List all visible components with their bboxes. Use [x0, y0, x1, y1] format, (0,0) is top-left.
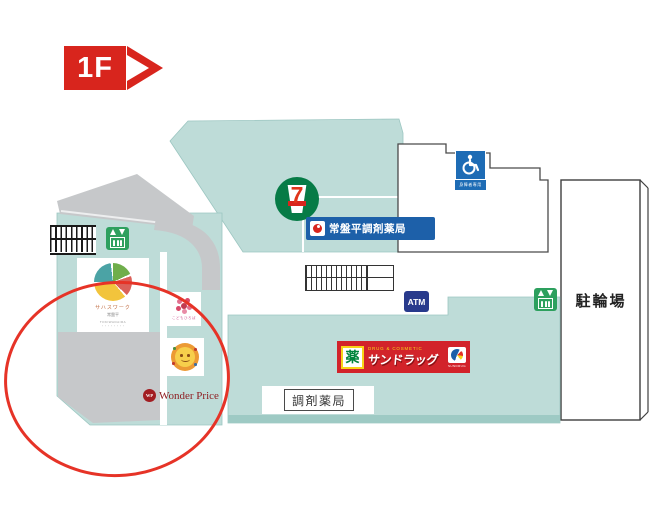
smiley-logo-tenant-card: [166, 338, 204, 376]
bicycle-parking-label: 駐輪場: [575, 290, 626, 311]
sundrug-kanji: 薬: [346, 347, 360, 367]
accessible-parking-caption: 身障者専用: [455, 180, 486, 190]
sundrug-kanji-badge: 薬: [341, 346, 364, 369]
stairs-icon: [50, 225, 96, 255]
seven-eleven-digit: 7: [275, 184, 319, 207]
sundrug-s-logo: SUNDRUG: [448, 347, 466, 368]
bottom-building-edge: [228, 415, 560, 423]
pie-tenant-line4: ・・・・・・・・: [101, 324, 125, 328]
stairs-icon: [305, 265, 394, 291]
wheelchair-icon: [455, 150, 486, 180]
accessible-parking-sign: 身障者専用: [455, 150, 486, 190]
sundrug-name: サンドラッグ: [367, 351, 439, 368]
atm-label: ATM: [408, 297, 426, 307]
slab-bevel: [640, 412, 648, 420]
sundrug-swoosh-icon: [448, 347, 466, 363]
pie-tenant-line2: 常盤平: [107, 312, 119, 318]
seven-eleven-logo: 7: [275, 177, 319, 221]
sundrug-banner: 薬 DRUG & COSMETIC サンドラッグ SUNDRUG: [337, 341, 470, 373]
pie-tenant-line1: サハスワーク: [95, 304, 131, 311]
bicycle-parking-label-wrap: 駐輪場: [561, 180, 641, 420]
slab-bevel: [640, 180, 648, 188]
elevator-icon: [534, 288, 557, 311]
floor-map-1f: 1F 7 常盤平調剤薬局 身障者専用 ATM: [0, 0, 664, 520]
floor-label: 1F: [77, 52, 113, 85]
wonder-price-name: Wonder Price: [159, 390, 219, 402]
pie-logo-tenant-card: サハスワーク 常盤平 TOKIWADAIRA ・・・・・・・・: [77, 258, 149, 332]
tokiwadaira-pharmacy-banner: 常盤平調剤薬局: [306, 217, 435, 240]
pie-logo: [94, 263, 132, 301]
floor-flag: 1F: [64, 46, 164, 90]
atm-badge: ATM: [404, 291, 429, 312]
elevator-icon: [106, 227, 129, 250]
flower-logo: [176, 298, 192, 314]
tokiwadaira-pharmacy-name: 常盤平調剤薬局: [329, 221, 406, 236]
floor-flag-body: 1F: [64, 46, 126, 90]
floor-flag-chevron-icon: [127, 46, 163, 90]
smiley-logo: [171, 343, 199, 371]
sundrug-caption: SUNDRUG: [448, 364, 466, 368]
flower-tenant-caption: こどもひろば: [172, 316, 196, 321]
wonder-price-store: WP Wonder Price: [143, 389, 219, 402]
sundrug-wordmark: DRUG & COSMETIC サンドラッグ: [368, 346, 438, 368]
flower-logo-tenant-card: こどもひろば: [167, 292, 201, 326]
dispensing-pharmacy-label: 調剤薬局: [284, 389, 354, 411]
wonder-price-badge-text: WP: [146, 393, 153, 398]
wonder-price-badge: WP: [143, 389, 156, 402]
dispensing-pharmacy-text: 調剤薬局: [292, 392, 346, 409]
pharmacy-logo-icon: [310, 221, 325, 236]
